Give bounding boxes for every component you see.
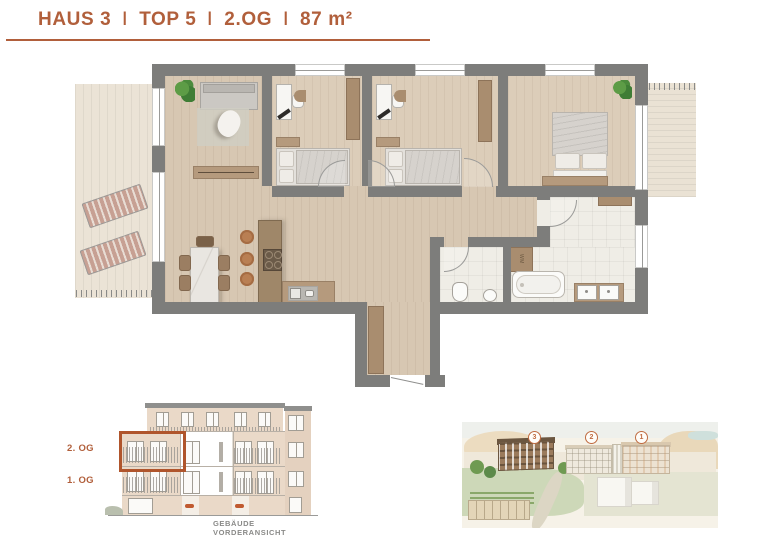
dining-chair	[218, 275, 230, 291]
window	[545, 64, 595, 76]
burner	[265, 251, 273, 259]
balcony	[648, 83, 696, 197]
garage-block	[632, 482, 658, 504]
tree	[484, 466, 496, 478]
apartment-highlight-box	[119, 431, 186, 472]
window	[635, 225, 648, 268]
title-separator: I	[123, 9, 127, 31]
title-separator: I	[284, 9, 288, 31]
wardrobe	[478, 80, 492, 142]
garage-block	[598, 478, 631, 506]
wall	[430, 237, 440, 387]
wall	[498, 76, 508, 186]
wall	[355, 375, 390, 387]
bar-stool	[240, 272, 254, 286]
elevation-window	[258, 412, 271, 427]
floor-label-2og: 2. OG	[67, 443, 94, 454]
washing-machine-label: WM	[518, 254, 524, 264]
dresser	[376, 137, 400, 147]
floorplan-page: HAUS 3ITOP 5I2.OGI87 m²	[0, 0, 770, 545]
dining-chair	[218, 255, 230, 271]
bathtub-drain	[520, 283, 524, 287]
building-1	[622, 445, 670, 474]
window-slit	[219, 472, 223, 492]
dining-chair	[196, 236, 214, 247]
elevation-caption: GEBÄUDE VORDERANSICHT	[213, 519, 330, 537]
title-underline	[6, 39, 430, 41]
bed-bench	[542, 176, 608, 186]
duvet	[552, 112, 608, 156]
title-separator: I	[208, 9, 212, 31]
entry-marker	[235, 504, 244, 508]
floor-label-1og: 1. OG	[67, 475, 94, 486]
column	[233, 431, 234, 496]
bar-stool	[240, 230, 254, 244]
wall	[503, 247, 511, 302]
wall	[430, 302, 648, 314]
entry-marker	[185, 504, 194, 508]
burner	[265, 261, 273, 269]
door-opening	[537, 200, 550, 226]
page-title: HAUS 3ITOP 5I2.OGI87 m²	[38, 9, 353, 31]
window	[295, 64, 345, 76]
faucet	[607, 290, 610, 293]
bar-stool	[240, 252, 254, 266]
wc-washbasin	[483, 289, 497, 302]
window	[415, 64, 465, 76]
building-elevation: 2. OG 1. OG GEBÄUDE VORDERANSICHT	[60, 395, 330, 535]
window	[152, 88, 165, 146]
pillow	[582, 153, 607, 169]
site-marker-3: 3	[528, 431, 541, 444]
tree	[470, 460, 484, 474]
side-table	[394, 90, 406, 102]
wall	[272, 186, 344, 197]
plant	[613, 80, 632, 99]
balcony-railing	[234, 448, 282, 464]
wall	[152, 302, 367, 314]
terrace-door-window	[152, 172, 165, 262]
pillow	[279, 151, 294, 167]
garage-door	[128, 498, 153, 514]
building-2	[566, 448, 612, 474]
plant	[175, 80, 195, 102]
elevation-window	[181, 412, 194, 427]
site-plan: 3 2 1	[462, 422, 718, 528]
dining-table	[190, 247, 219, 303]
duvet	[405, 150, 460, 184]
sink-basin	[290, 288, 301, 299]
title-top: TOP 5	[139, 9, 196, 30]
elevation-window	[206, 412, 219, 427]
balcony-railing	[649, 83, 695, 90]
elevation-window	[183, 471, 200, 494]
wall	[368, 186, 462, 197]
site-marker-2: 2	[585, 431, 598, 444]
sideboard-groove	[198, 172, 254, 173]
wardrobe	[346, 78, 360, 140]
dresser	[276, 137, 300, 147]
ground-line	[108, 515, 318, 516]
elevation-window	[288, 442, 304, 458]
site-marker-1: 1	[635, 431, 648, 444]
side-table	[294, 90, 306, 102]
entry-door	[289, 497, 302, 513]
balcony-railing	[123, 477, 178, 493]
wall	[262, 76, 272, 186]
title-haus: HAUS 3	[38, 9, 111, 30]
elevation-window	[288, 471, 304, 487]
sofa-cushions	[203, 84, 255, 93]
wall	[496, 186, 648, 197]
burner	[274, 251, 282, 259]
window-slit	[219, 442, 223, 462]
faucet	[585, 290, 588, 293]
elevation-window	[288, 415, 304, 431]
pillow	[555, 153, 580, 169]
pillow	[279, 169, 294, 183]
pillow	[388, 151, 403, 167]
hall-wardrobe	[368, 306, 384, 374]
title-area: 87 m²	[300, 9, 353, 30]
balcony-door-window	[635, 105, 648, 190]
shrub	[105, 506, 123, 515]
building-3	[498, 441, 554, 471]
wall	[425, 375, 445, 387]
wall	[468, 237, 550, 247]
title-floor: 2.OG	[224, 9, 272, 30]
dining-chair	[179, 255, 191, 271]
terrace-railing	[76, 290, 156, 297]
toilet	[452, 282, 468, 302]
dining-chair	[179, 275, 191, 291]
elevation-window	[156, 412, 169, 427]
burner	[274, 261, 282, 269]
pergola	[468, 500, 530, 520]
sink-basin	[305, 290, 314, 297]
balcony-railing	[234, 478, 282, 494]
water	[688, 431, 718, 440]
elevation-window	[234, 412, 247, 427]
